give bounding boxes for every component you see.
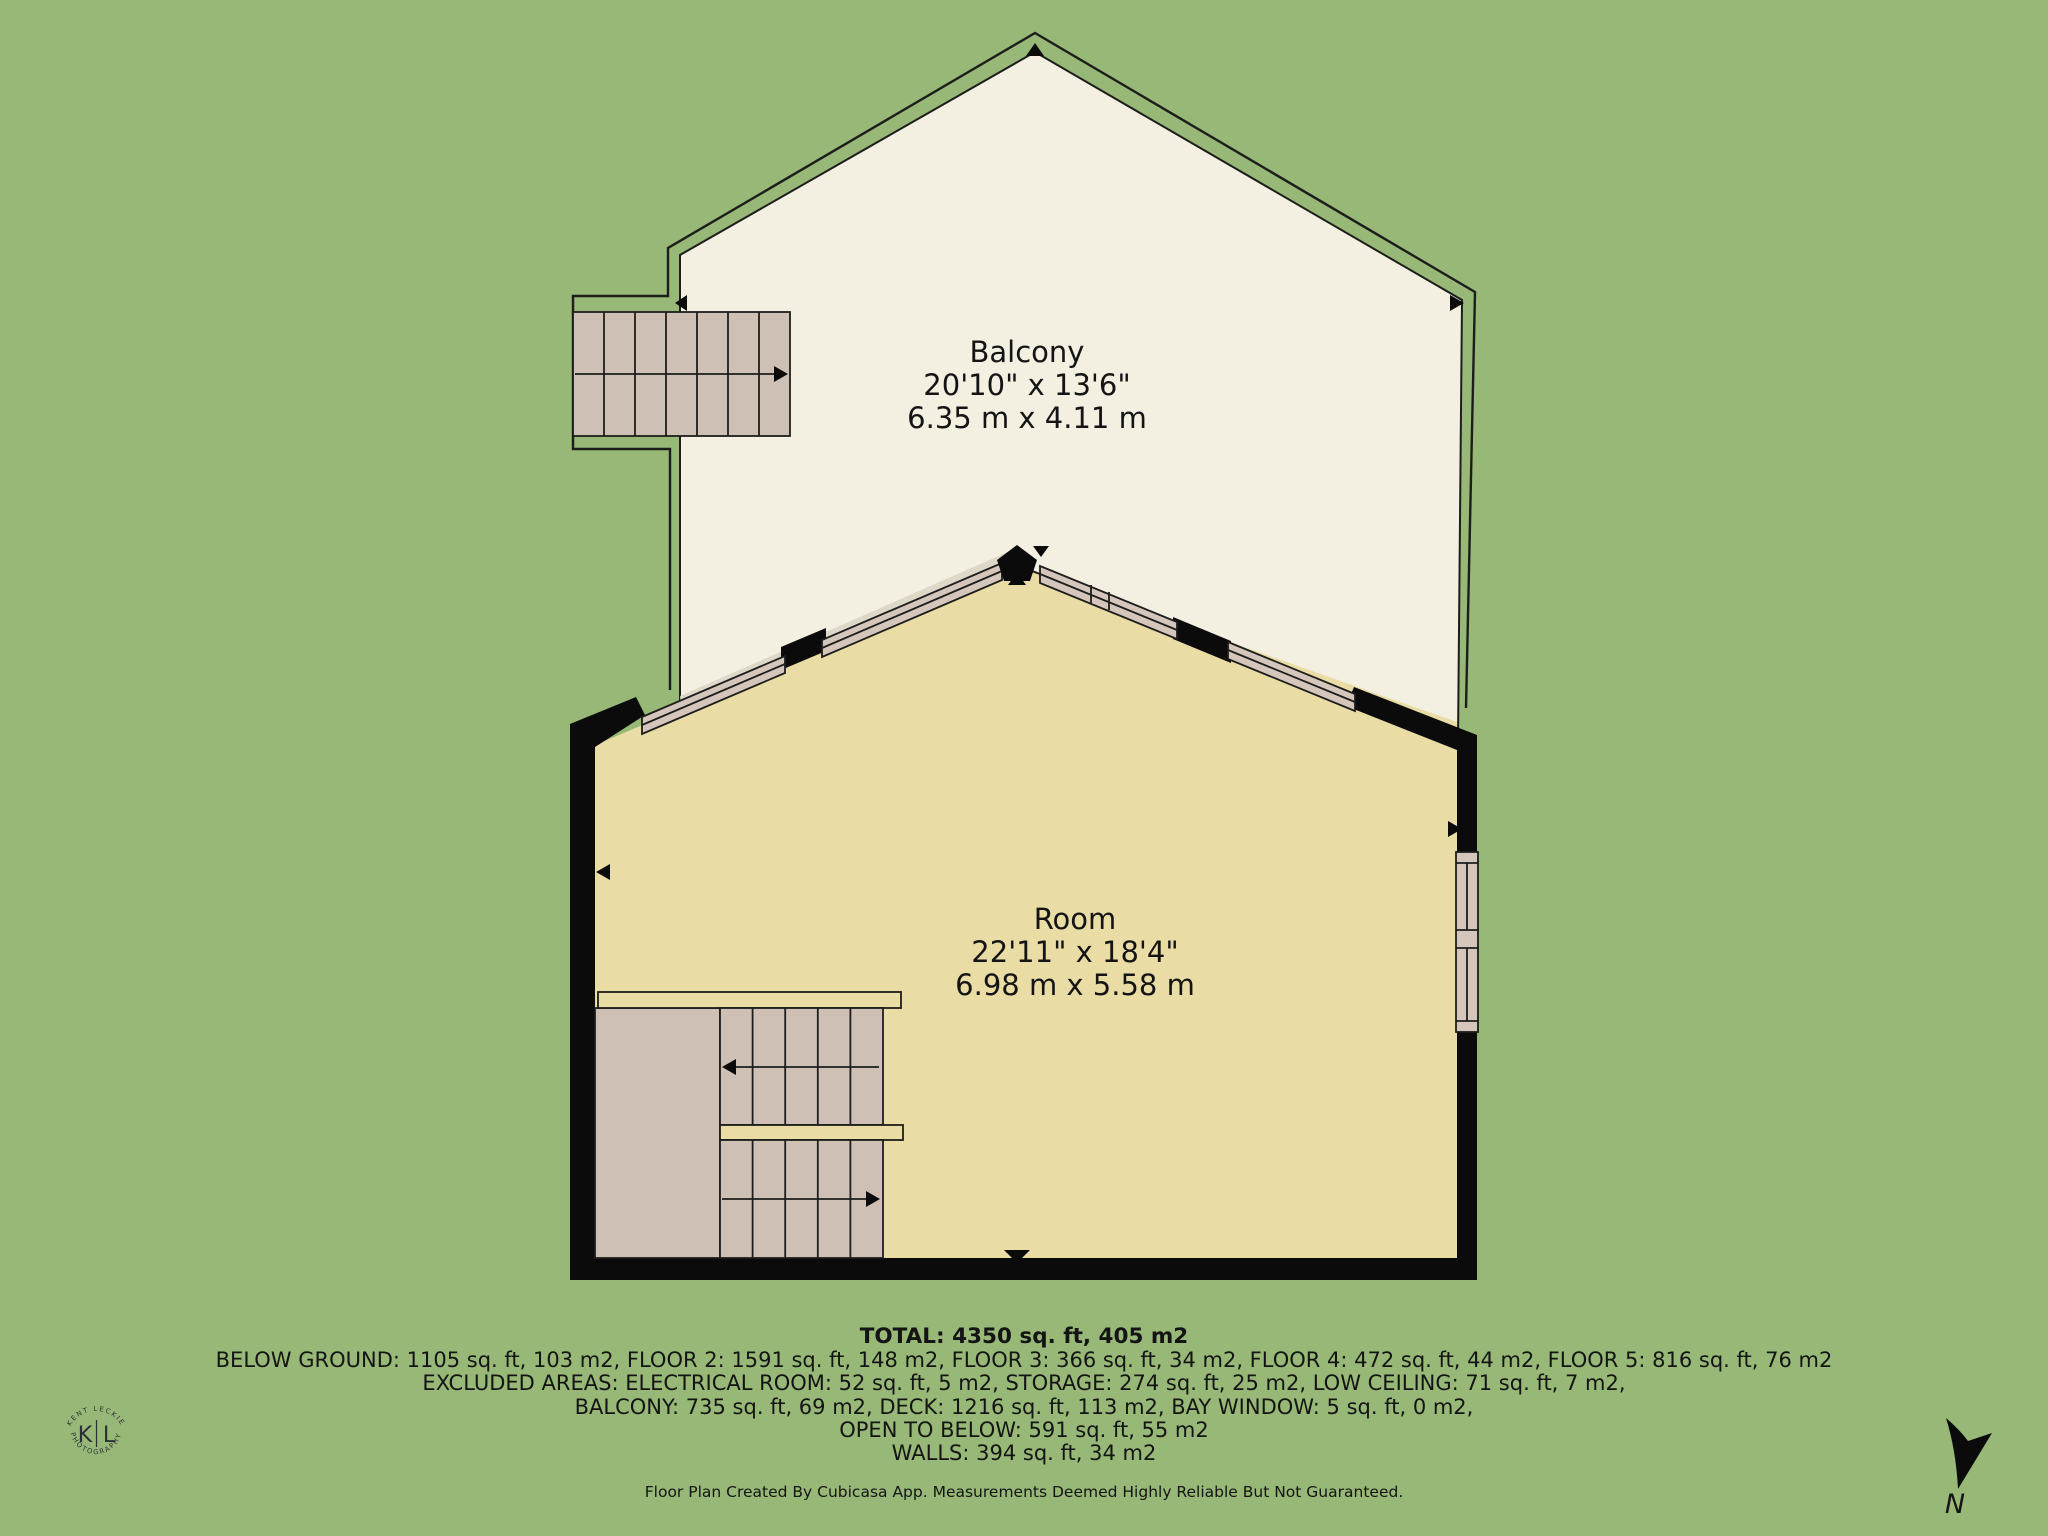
floor-plan-canvas: Balcony 20'10" x 13'6" 6.35 m x 4.11 m R… [0, 0, 2048, 1536]
balcony-stairs [573, 312, 790, 436]
summary-floors: BELOW GROUND: 1105 sq. ft, 103 m2, FLOOR… [216, 1348, 1833, 1372]
bottom-wall [570, 1258, 1477, 1280]
balcony-dim-metric: 6.35 m x 4.11 m [907, 401, 1147, 435]
north-label: N [1945, 1489, 1965, 1520]
room-label: Room [1034, 902, 1117, 936]
floor-plan-page: Balcony 20'10" x 13'6" 6.35 m x 4.11 m R… [0, 0, 2048, 1536]
balcony-dim-imperial: 20'10" x 13'6" [923, 368, 1130, 402]
room-dim-imperial: 22'11" x 18'4" [971, 935, 1178, 969]
summary-total: TOTAL: 4350 sq. ft, 405 m2 [860, 1324, 1189, 1349]
stair-landing [595, 1008, 720, 1258]
stair-top-edge [598, 992, 901, 1008]
balcony-label: Balcony [970, 335, 1085, 369]
disclaimer-text: Floor Plan Created By Cubicasa App. Meas… [645, 1483, 1404, 1501]
logo-initial-l: L [103, 1423, 116, 1448]
summary-excluded-1: EXCLUDED AREAS: ELECTRICAL ROOM: 52 sq. … [422, 1371, 1625, 1395]
summary-walls: WALLS: 394 sq. ft, 34 m2 [892, 1441, 1157, 1465]
stair-mid-landing-edge [720, 1125, 903, 1140]
summary-open-to-below: OPEN TO BELOW: 591 sq. ft, 55 m2 [839, 1418, 1209, 1442]
logo-initial-k: K [78, 1423, 93, 1448]
room-dim-metric: 6.98 m x 5.58 m [955, 968, 1195, 1002]
summary-excluded-2: BALCONY: 735 sq. ft, 69 m2, DECK: 1216 s… [575, 1395, 1474, 1419]
room-stairs [595, 992, 903, 1258]
